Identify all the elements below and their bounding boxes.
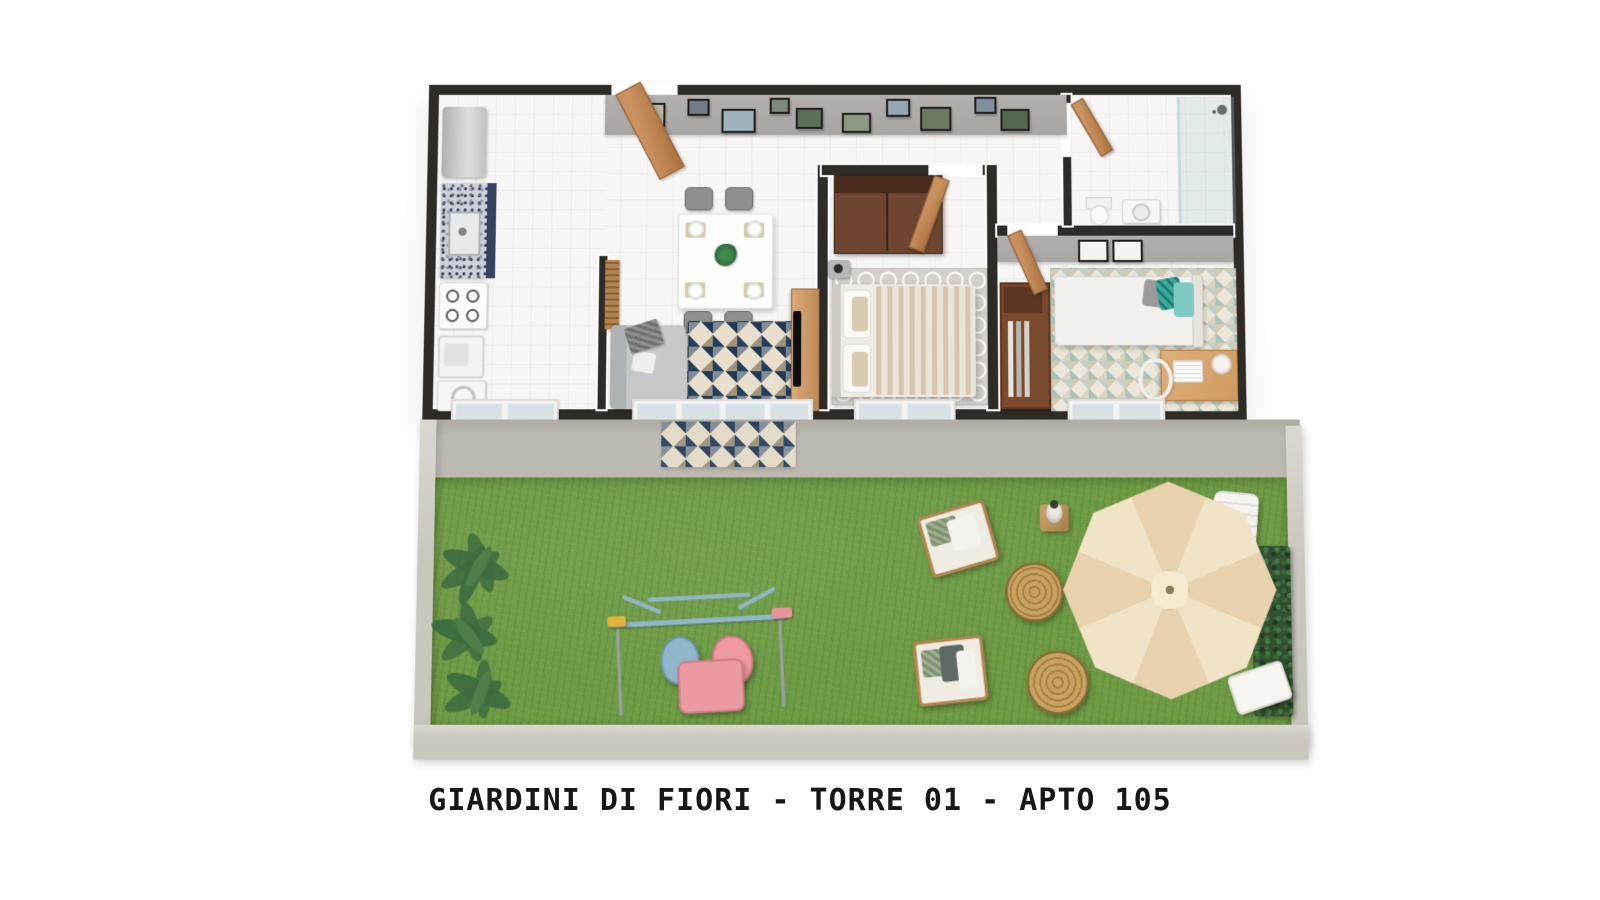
striped-duvet [876,286,976,394]
plate [746,221,763,238]
wicker-pouf [1027,651,1089,714]
picture-frame [687,99,709,116]
balcony-tile-patch [661,422,796,467]
bedroom-closet-wall [987,165,999,409]
dining-chair [725,187,753,210]
picture-frame [842,113,871,133]
sofa-pillow [631,350,657,374]
apartment [422,85,1246,420]
palm-plants [426,523,563,723]
bedroom-picture-frame [1078,240,1109,262]
swing-set [611,586,791,722]
swing-platform [677,658,745,714]
picture-frame [886,99,910,117]
toilet [1090,205,1109,225]
accent-pillow [852,297,868,332]
slatted-divider-panel [605,260,620,329]
refrigerator [441,107,487,177]
bathroom-sink [1132,203,1150,221]
picture-frame [721,109,755,133]
swing-top-bar [648,592,751,602]
swing-cap-pink [771,607,792,619]
plan-caption: GIARDINI DI FIORI - TORRE 01 - APTO 105 [0,783,1600,818]
dining-chair [685,187,713,210]
garden-armchair [912,635,989,708]
accent-pillow [852,352,868,387]
laundry-tub-basin [444,344,469,367]
wicker-pouf [1005,563,1063,622]
kitchen-cabinet-front [486,183,497,278]
floor-plan-render: GIARDINI DI FIORI - TORRE 01 - APTO 105 [0,0,1600,900]
hanging-clothes [1016,321,1022,397]
sofa-backrest [610,325,627,409]
bedside-lamp [834,264,843,273]
hanging-clothes [1008,321,1014,397]
shower-head [1217,105,1227,115]
couple-bedroom-doorway [928,165,982,175]
laptop [1173,360,1204,383]
desk-lamp [1211,354,1232,375]
bedroom-picture-frame [1112,240,1143,262]
stove [438,282,487,329]
living-room-rug [687,321,797,411]
swing-frame-leg [778,610,786,707]
white-cushion [946,514,982,552]
picture-frame [1000,109,1029,131]
desk-chair [1138,358,1173,401]
teal-pillow [1174,282,1195,317]
white-cushion [956,649,978,689]
plate [687,221,704,238]
umbrella-pole [1166,586,1174,594]
swing-brace [737,587,775,610]
double-bed-headboard [832,284,841,397]
shower-enclosure [1177,97,1236,224]
gallery-accent-wall [605,95,1067,135]
vase-top [1050,500,1058,508]
wardrobe-door-split [886,192,888,251]
swing-frame-leg [616,618,623,715]
plan-group [415,85,1306,760]
garden-wall-bottom [413,725,1309,760]
swing-crossbar [612,614,787,629]
picture-frame [770,98,790,114]
swing-cap-yellow [607,616,626,627]
patio [421,420,1301,478]
hanging-clothes [1024,321,1030,397]
picture-frame [974,97,996,114]
plate [746,282,763,299]
tv [793,311,801,387]
picture-frame [920,107,951,131]
plate [687,282,704,299]
picture-frame [796,108,823,129]
